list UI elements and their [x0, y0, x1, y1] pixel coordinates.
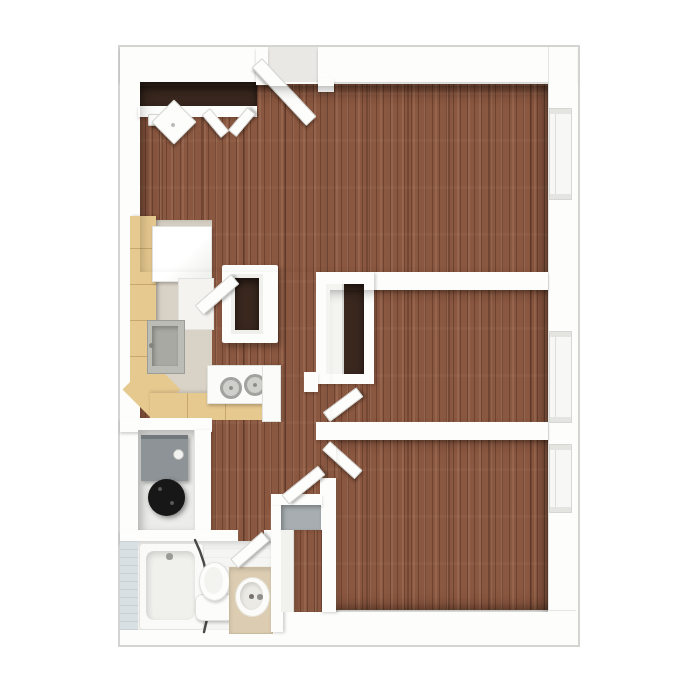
entry-closet-interior [140, 82, 257, 106]
bedroom1-closet-door-panel [326, 284, 344, 374]
vanity-drain [249, 594, 254, 599]
window-sill [550, 109, 571, 114]
hall-wall-notch [304, 372, 318, 392]
window-mullion [555, 336, 556, 418]
window-mullion [555, 113, 556, 195]
water-heater-pipe [158, 487, 162, 491]
window-sill [550, 194, 571, 199]
utility-right-wall [194, 430, 211, 530]
top-wall-left [120, 47, 260, 82]
refrigerator [152, 226, 212, 282]
window-living-room [549, 108, 572, 200]
water-heater [148, 479, 185, 516]
floor-plan [0, 0, 697, 697]
pass-through-opening [235, 278, 259, 330]
toilet-bowl [199, 562, 230, 601]
kitchen-faucet [149, 343, 154, 348]
hall-closet-floor [293, 530, 322, 612]
window-sill [550, 445, 571, 450]
window-mullion [555, 449, 556, 508]
kitchen-sink-basin [152, 326, 178, 366]
entry-door-strike-jamb [318, 78, 334, 92]
vanity-faucet [257, 594, 263, 600]
vanity-sink [235, 577, 270, 617]
toilet-seat [204, 567, 223, 594]
bedroom-divider-wall [316, 422, 548, 440]
window-bedroom-2 [549, 444, 572, 513]
door-hardware-dot [171, 123, 175, 127]
furnace-knob [173, 449, 184, 460]
window-sill [550, 417, 571, 422]
hall-closet-shelf [281, 505, 321, 533]
window-sill [550, 332, 571, 337]
hall-closet-open-door [281, 530, 294, 612]
bathroom-vanity [229, 567, 273, 634]
water-heater-valve [170, 501, 174, 505]
window-sill [550, 507, 571, 512]
window-bedroom-1 [549, 331, 572, 423]
bathroom-wall-tile [120, 541, 138, 630]
counter-end-panel [262, 365, 281, 422]
kitchen-sink [147, 320, 185, 374]
bedroom2-left-wall [320, 478, 336, 612]
stove-burner-left [220, 377, 242, 399]
top-wall-right [318, 47, 576, 82]
